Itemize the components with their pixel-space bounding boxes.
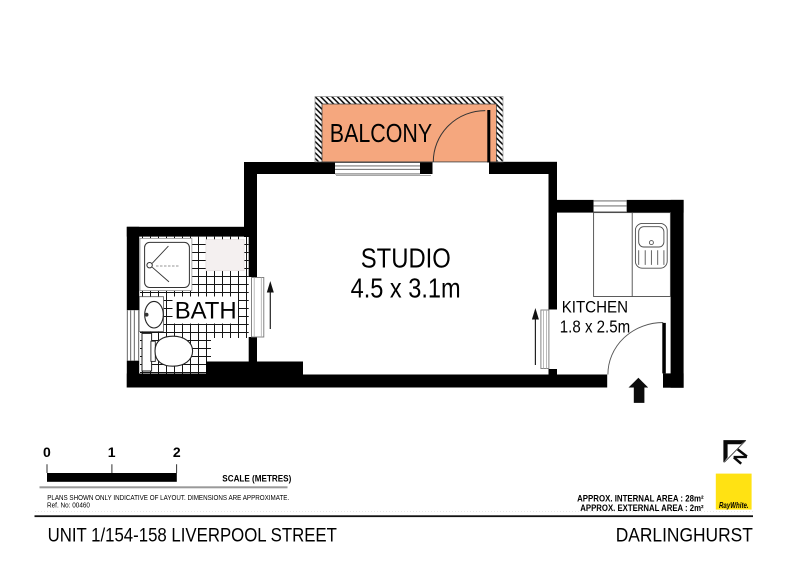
- svg-text:DARLINGHURST: DARLINGHURST: [616, 524, 753, 546]
- svg-text:1.8 x 2.5m: 1.8 x 2.5m: [560, 316, 630, 336]
- svg-text:SCALE (METRES): SCALE (METRES): [222, 474, 291, 484]
- svg-text:APPROX. INTERNAL AREA : 28m²: APPROX. INTERNAL AREA : 28m²: [577, 493, 704, 503]
- svg-text:KITCHEN: KITCHEN: [562, 297, 628, 316]
- svg-text:BATH: BATH: [175, 298, 237, 325]
- svg-text:UNIT 1/154-158 LIVERPOOL STREE: UNIT 1/154-158 LIVERPOOL STREET: [48, 525, 337, 547]
- svg-text:2: 2: [173, 444, 181, 460]
- svg-text:STUDIO: STUDIO: [361, 243, 451, 274]
- svg-text:RayWhite.: RayWhite.: [719, 501, 749, 510]
- svg-text:0: 0: [43, 444, 51, 460]
- svg-text:1: 1: [108, 444, 116, 460]
- svg-text:BALCONY: BALCONY: [330, 120, 432, 148]
- svg-text:4.5 x 3.1m: 4.5 x 3.1m: [351, 272, 461, 303]
- svg-text:Ref. No: 00460: Ref. No: 00460: [47, 501, 90, 510]
